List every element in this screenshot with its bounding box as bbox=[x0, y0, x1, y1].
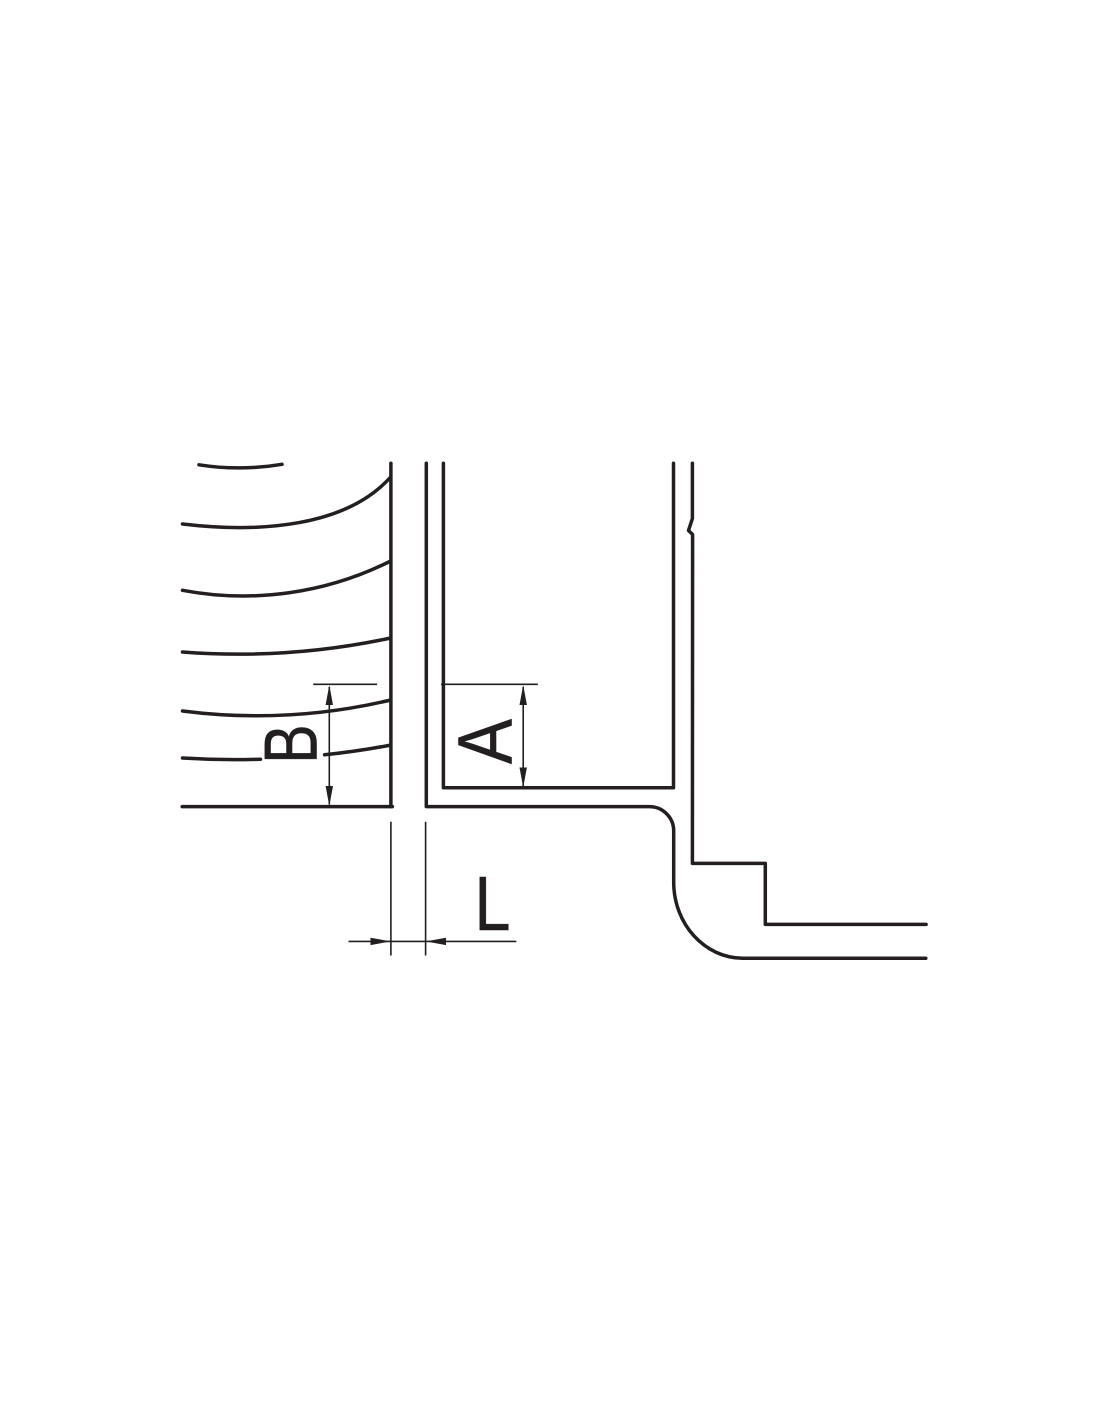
svg-text:B: B bbox=[250, 724, 333, 763]
svg-text:A: A bbox=[444, 719, 529, 764]
svg-text:L: L bbox=[475, 862, 511, 948]
